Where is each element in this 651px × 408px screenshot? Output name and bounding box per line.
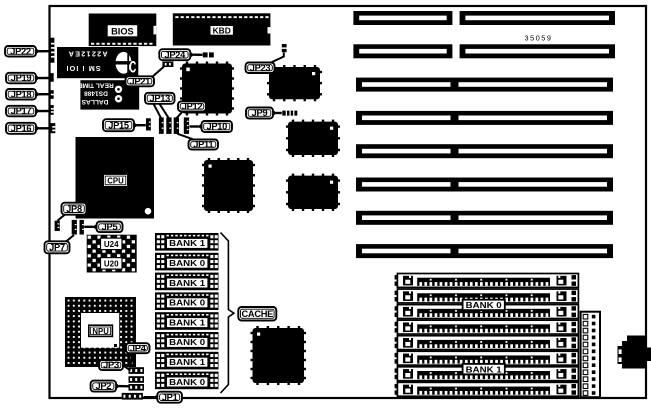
svg-text:JP13: JP13: [149, 93, 170, 103]
svg-text:35059: 35059: [525, 34, 553, 43]
svg-text:JP1: JP1: [162, 392, 178, 402]
svg-text:JP4: JP4: [130, 343, 147, 353]
svg-text:C: C: [129, 58, 136, 77]
svg-text:JP5: JP5: [102, 222, 118, 232]
svg-text:BANK 0: BANK 0: [169, 338, 206, 347]
svg-text:BANK 1: BANK 1: [466, 365, 503, 374]
svg-text:DALLAS: DALLAS: [81, 98, 108, 105]
svg-text:DS1488: DS1488: [84, 89, 108, 96]
svg-text:JP21: JP21: [129, 76, 150, 86]
svg-text:U24: U24: [104, 240, 119, 249]
svg-text:KBD: KBD: [213, 25, 231, 35]
svg-text:U20: U20: [104, 260, 119, 269]
svg-text:JP7: JP7: [49, 242, 65, 252]
svg-text:JP19: JP19: [11, 73, 32, 83]
svg-text:JP12: JP12: [182, 102, 203, 112]
svg-text:JP2: JP2: [96, 381, 112, 391]
svg-text:JP15: JP15: [108, 120, 129, 130]
svg-text:REAL TIME: REAL TIME: [78, 81, 114, 88]
svg-text:JP8: JP8: [66, 204, 82, 214]
svg-text:JP9: JP9: [252, 108, 268, 118]
svg-text:JP3: JP3: [103, 360, 119, 370]
svg-text:JP18: JP18: [11, 89, 32, 99]
svg-text:BIOS: BIOS: [111, 26, 133, 36]
svg-text:JP11: JP11: [193, 140, 213, 150]
svg-text:CPU: CPU: [107, 177, 124, 186]
svg-text:A2212EA: A2212EA: [67, 50, 107, 59]
svg-text:BANK 1: BANK 1: [169, 239, 206, 248]
svg-text:BANK 1: BANK 1: [169, 318, 206, 327]
svg-text:JP23: JP23: [250, 63, 271, 73]
svg-text:BANK 0: BANK 0: [169, 299, 206, 308]
svg-text:NPU: NPU: [92, 327, 109, 336]
svg-text:BANK 0: BANK 0: [169, 259, 206, 268]
svg-text:SM I IOI: SM I IOI: [65, 64, 100, 73]
svg-text:BANK 1: BANK 1: [169, 279, 206, 288]
svg-text:JP24: JP24: [165, 50, 187, 60]
svg-text:BANK 1: BANK 1: [169, 358, 206, 367]
svg-text:BANK 0: BANK 0: [466, 301, 503, 310]
svg-text:JP16: JP16: [11, 123, 32, 133]
svg-text:JP17: JP17: [11, 106, 32, 116]
svg-text:CACHE: CACHE: [242, 309, 274, 319]
svg-text:BANK 0: BANK 0: [169, 378, 206, 387]
svg-text:JP22: JP22: [10, 46, 31, 56]
svg-text:JP10: JP10: [206, 122, 227, 132]
